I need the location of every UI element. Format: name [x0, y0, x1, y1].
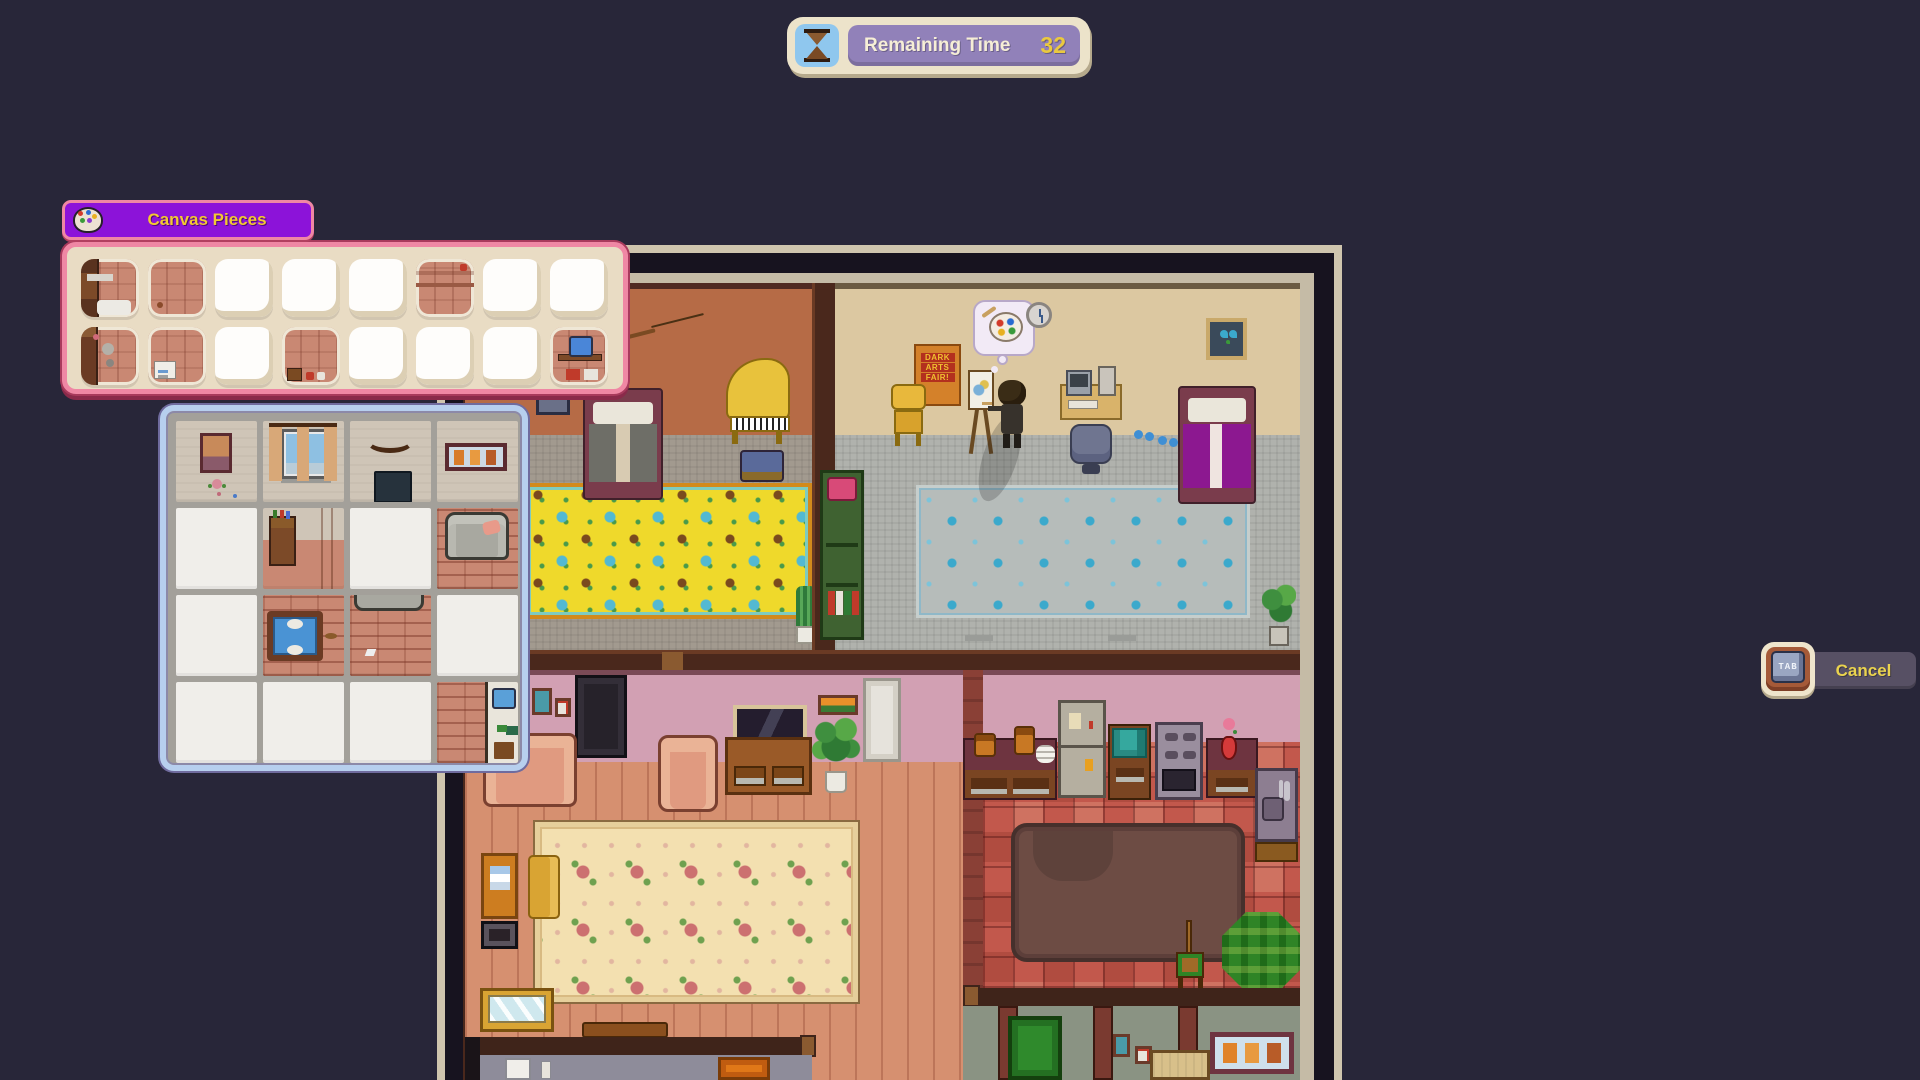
- bookshelf-phone: [827, 477, 857, 501]
- board-cell-piece-triple-frame[interactable]: [437, 421, 518, 502]
- board-cell-piece-bow-tv[interactable]: [350, 421, 431, 502]
- tray-slot-piece-floor-items[interactable]: [282, 327, 340, 385]
- corner-plant: [1262, 582, 1296, 648]
- faucet: [1284, 781, 1290, 801]
- washer: [505, 1058, 531, 1080]
- kitchen-chair: [1172, 920, 1206, 990]
- blue-rug: [916, 485, 1250, 618]
- canvas-pieces-tray-grid: [81, 259, 608, 385]
- player-arm: [988, 406, 1004, 411]
- bookshelf-shelfline: [826, 543, 858, 547]
- board-cell-empty[interactable]: [350, 508, 431, 589]
- butterfly: [1220, 330, 1228, 338]
- kitchen-table: [1011, 823, 1245, 962]
- white-door: [863, 678, 901, 762]
- mudroom: [963, 1006, 1300, 1080]
- floral-rug: [535, 822, 858, 1002]
- tray-slot-piece-floor-plain[interactable]: [148, 259, 206, 317]
- sink-unit: [1255, 768, 1298, 842]
- canvas-pieces-title: Canvas Pieces: [103, 210, 311, 230]
- board-cell-empty[interactable]: [263, 682, 344, 763]
- house-outer-wall: DARK ARTS FAIR!: [463, 273, 1314, 1080]
- player-hair: [998, 380, 1026, 406]
- pc-tower: [1098, 366, 1116, 396]
- kitchen: [963, 670, 1300, 1080]
- remaining-time-pill: Remaining Time 32: [848, 25, 1080, 66]
- keyboard: [1068, 400, 1098, 409]
- corner-plant-leaves: [1262, 582, 1296, 626]
- wall-clock: [1026, 302, 1052, 328]
- tray-slot-piece-floor-wall[interactable]: [416, 259, 474, 317]
- mirror-glass: [488, 995, 546, 1023]
- grand-piano: [724, 358, 794, 448]
- yellow-rug: [524, 483, 812, 619]
- poster-line-2: ARTS: [921, 363, 955, 372]
- plate-stack: [1036, 745, 1055, 763]
- kitchen-bottom-wall: [963, 988, 1300, 1006]
- tray-slot-piece-cabinet-floor[interactable]: [81, 259, 139, 317]
- tray-slot-piece-floor-card[interactable]: [148, 327, 206, 385]
- dumbbell-b: [1158, 436, 1167, 445]
- board-cell-empty[interactable]: [176, 595, 257, 676]
- mirror-table: [480, 988, 554, 1032]
- cancel-button[interactable]: Cancel TAB: [1761, 642, 1916, 698]
- tray-slot-empty[interactable]: [215, 327, 273, 385]
- triptych-buildings: [1223, 1043, 1237, 1063]
- small-picture-red: [555, 698, 571, 717]
- flower-vase: [1218, 716, 1240, 766]
- dumbbell-a: [1134, 430, 1143, 439]
- clock-hands: [1039, 309, 1041, 317]
- tray-slot-empty[interactable]: [349, 327, 407, 385]
- floor-divider-wall: [463, 650, 1300, 670]
- puzzle-board: [160, 405, 528, 771]
- corner-plant-pot: [1269, 626, 1289, 646]
- board-cell-empty[interactable]: [437, 595, 518, 676]
- player-character: [994, 380, 1030, 472]
- board-cell-piece-window-curtains[interactable]: [263, 421, 344, 502]
- monitor-screen: [1070, 374, 1088, 387]
- piano-body: [726, 358, 790, 420]
- green-door: [1008, 1016, 1062, 1080]
- detergent-bottle: [541, 1061, 551, 1079]
- bed-left: [583, 388, 663, 500]
- left-dark-strip: [465, 1037, 480, 1080]
- board-cell-empty[interactable]: [176, 508, 257, 589]
- orange-picture: [818, 695, 858, 715]
- tab-keycap: TAB: [1771, 651, 1805, 683]
- board-cell-piece-couch[interactable]: [437, 508, 518, 589]
- remaining-time-value: 32: [1040, 32, 1066, 59]
- dumbbells: [1134, 428, 1178, 450]
- microwave: [1112, 728, 1147, 758]
- mudroom-table: [1150, 1050, 1210, 1080]
- mudroom-pic-teal: [1113, 1034, 1130, 1057]
- divider-doorway: [662, 652, 683, 670]
- tray-slot-empty[interactable]: [349, 259, 407, 317]
- laundry-room: [465, 1055, 812, 1080]
- remaining-time-label: Remaining Time: [864, 35, 1040, 57]
- flower: [1223, 718, 1235, 730]
- big-plant-pot: [825, 771, 847, 793]
- wall-vent-frame: [481, 921, 518, 949]
- vase: [1221, 736, 1237, 760]
- bubble-trail: [997, 354, 1008, 365]
- living-room-bottom-wall: [480, 1037, 815, 1055]
- burners: [1165, 733, 1178, 741]
- board-cell-piece-sink-corner[interactable]: [437, 682, 518, 763]
- piano-keys: [730, 416, 790, 432]
- office-chair-back: [1070, 424, 1112, 464]
- tv-stand: [725, 737, 812, 795]
- board-cell-piece-cabinet-door[interactable]: [263, 508, 344, 589]
- player-legs: [1003, 434, 1010, 448]
- bed-left-blanket-stripe: [616, 424, 630, 482]
- chair-back: [891, 384, 926, 410]
- sink-base-counter: [1255, 842, 1298, 862]
- puzzle-board-grid: [176, 421, 518, 763]
- low-wood-table: [582, 1022, 668, 1038]
- tray-slot-empty[interactable]: [483, 327, 541, 385]
- piano-legs: [732, 430, 738, 444]
- butterfly-picture: [1206, 318, 1247, 360]
- tray-slot-empty[interactable]: [282, 259, 340, 317]
- table-shadow-spot: [1033, 831, 1113, 881]
- triptych-picture: [1210, 1032, 1294, 1074]
- palette-in-bubble: [989, 312, 1023, 342]
- chair-seat: [894, 410, 923, 434]
- office-chair-base: [1082, 464, 1100, 474]
- cancel-label: Cancel: [1816, 661, 1892, 681]
- bottom-wall-cap: [800, 1035, 816, 1057]
- micro-drawer: [1116, 768, 1144, 782]
- bed-left-pillow: [593, 402, 653, 424]
- board-cell-empty[interactable]: [176, 682, 257, 763]
- tray-slot-piece-desk-blue[interactable]: [550, 327, 608, 385]
- counter-right-drawer: [1216, 778, 1248, 792]
- poster-line-3: FAIR!: [921, 373, 955, 382]
- board-cell-piece-picture-flower[interactable]: [176, 421, 257, 502]
- bookshelf-books: [828, 591, 835, 615]
- remaining-time-badge: Remaining Time 32: [787, 17, 1090, 74]
- counter-drawers-2: [1013, 778, 1049, 794]
- big-plant: [810, 715, 862, 795]
- green-bookshelf: [820, 470, 864, 640]
- stove: [1155, 722, 1203, 800]
- poster-line-1: DARK: [921, 353, 955, 362]
- tray-slot-empty[interactable]: [483, 259, 541, 317]
- fridge: [1058, 700, 1106, 798]
- bedroom-right: DARK ARTS FAIR!: [835, 283, 1300, 650]
- thought-bubble: [973, 300, 1035, 356]
- yellow-bench: [528, 855, 560, 919]
- player-brush: [982, 402, 992, 405]
- counter-drawers: [971, 778, 1007, 794]
- player-body: [1001, 404, 1023, 434]
- computer-desk: [1060, 370, 1122, 428]
- pot-a: [974, 733, 996, 757]
- tray-slot-empty[interactable]: [215, 259, 273, 317]
- board-cell-piece-table-blue[interactable]: [263, 595, 344, 676]
- easel-leg-l: [969, 408, 979, 454]
- intercom-panel: [481, 853, 518, 919]
- tv-stand-drawers-2: [772, 766, 804, 786]
- bed-right: [1178, 386, 1256, 504]
- piano-bench: [740, 450, 784, 482]
- fridge-divider: [1061, 745, 1103, 748]
- kitchen-left-wall: [963, 670, 983, 988]
- bed-right-pillow: [1188, 398, 1246, 422]
- microwave-unit: [1108, 724, 1151, 800]
- kchair-seat: [1176, 952, 1204, 978]
- fridge-notes: [1069, 713, 1081, 729]
- house-interior: DARK ARTS FAIR!: [463, 283, 1300, 1080]
- hourglass-tile: [795, 24, 839, 67]
- oven-door: [1162, 769, 1196, 791]
- living-room: [465, 670, 963, 1080]
- black-door: [575, 675, 627, 758]
- chair-legs: [895, 434, 900, 446]
- tv-stand-drawers: [734, 766, 766, 786]
- board-cell-empty[interactable]: [350, 682, 431, 763]
- canvas-pieces-tray: [62, 242, 628, 394]
- sink-basin: [1262, 797, 1284, 821]
- tab-key-icon: TAB: [1761, 642, 1815, 696]
- yellow-chair: [889, 384, 928, 448]
- pot-b: [1014, 726, 1035, 755]
- hourglass-icon: [804, 29, 830, 62]
- big-plant-leaves: [810, 715, 862, 773]
- wall-picture-dark: [536, 391, 570, 415]
- beam-2: [1093, 1006, 1113, 1080]
- orange-door-lower: [718, 1057, 770, 1080]
- canvas-pieces-header: Canvas Pieces: [62, 200, 314, 240]
- pink-armchair: [658, 735, 718, 812]
- tray-slot-piece-dresser[interactable]: [81, 327, 139, 385]
- board-cell-piece-couch-floor[interactable]: [350, 595, 431, 676]
- game-screen: DARK ARTS FAIR!: [0, 0, 1920, 1080]
- office-chair: [1062, 424, 1120, 478]
- bed-right-stripe: [1210, 424, 1222, 488]
- tray-slot-empty[interactable]: [416, 327, 474, 385]
- floor-vent: [965, 635, 993, 641]
- kitchen-wall-cap: [963, 985, 980, 1007]
- small-picture-teal: [532, 688, 552, 715]
- tray-slot-empty[interactable]: [550, 259, 608, 317]
- palette-icon: [73, 207, 103, 233]
- intercom-buttons: [490, 866, 510, 890]
